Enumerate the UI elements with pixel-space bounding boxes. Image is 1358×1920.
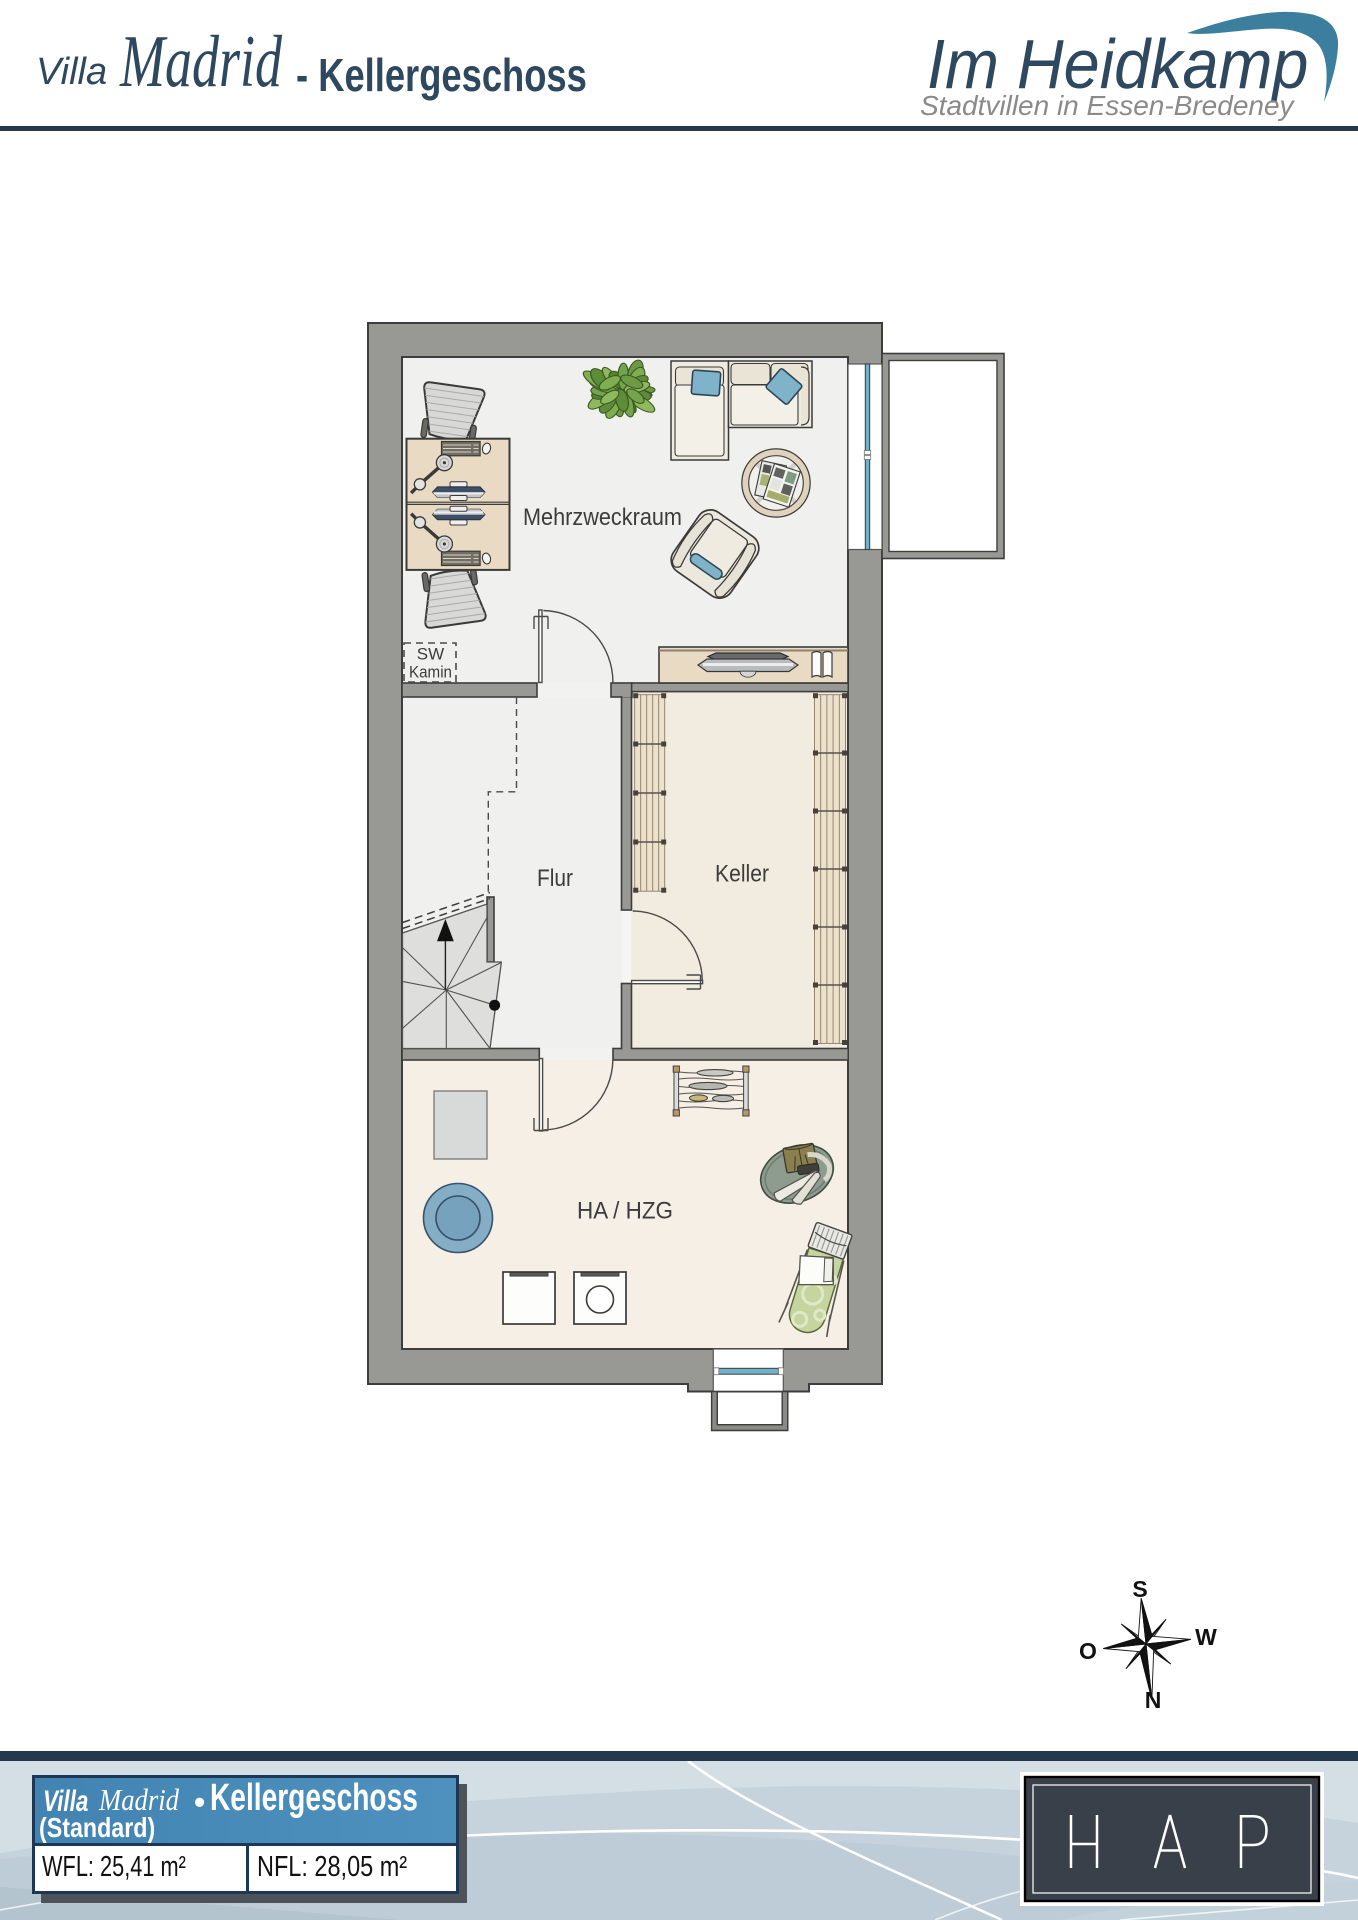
- svg-text:HA / HZG: HA / HZG: [577, 1198, 673, 1225]
- svg-text:N: N: [1145, 1687, 1162, 1713]
- svg-text:Keller: Keller: [715, 861, 769, 888]
- svg-text:S: S: [1132, 1576, 1147, 1602]
- svg-text:Flur: Flur: [537, 865, 573, 892]
- svg-text:Kamin: Kamin: [409, 663, 452, 682]
- svg-text:SW: SW: [417, 645, 444, 664]
- svg-text:W: W: [1195, 1624, 1217, 1650]
- svg-text:O: O: [1079, 1638, 1097, 1664]
- svg-text:Mehrzweckraum: Mehrzweckraum: [523, 504, 682, 531]
